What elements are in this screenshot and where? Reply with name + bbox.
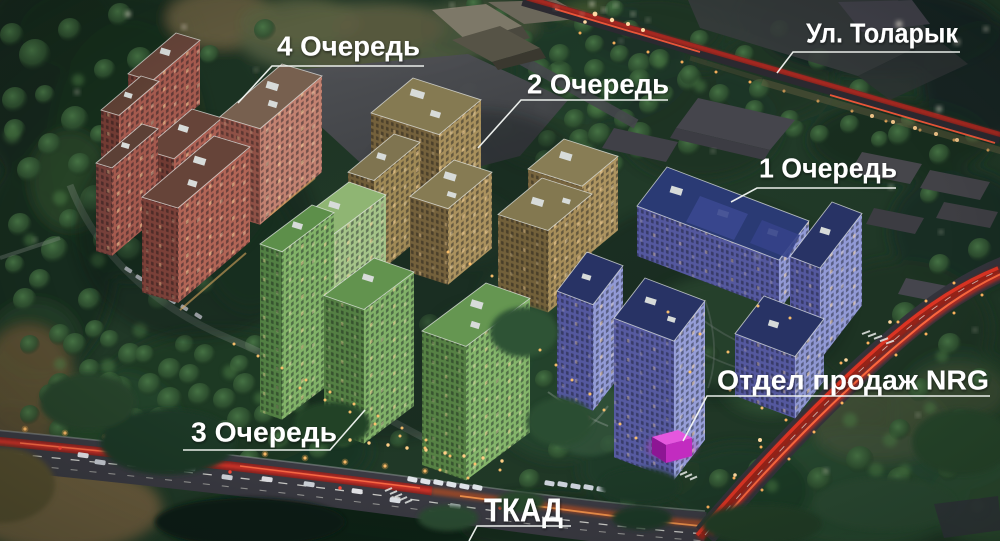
svg-text:3 Очередь: 3 Очередь (191, 417, 337, 448)
svg-text:ТКАД: ТКАД (484, 492, 563, 529)
svg-text:1 Очередь: 1 Очередь (759, 153, 897, 184)
svg-text:Ул. Толарык: Ул. Толарык (806, 18, 959, 49)
svg-text:2 Очередь: 2 Очередь (527, 69, 669, 100)
svg-text:Отдел продаж NRG: Отдел продаж NRG (717, 365, 989, 396)
svg-text:4 Очередь: 4 Очередь (277, 31, 420, 62)
